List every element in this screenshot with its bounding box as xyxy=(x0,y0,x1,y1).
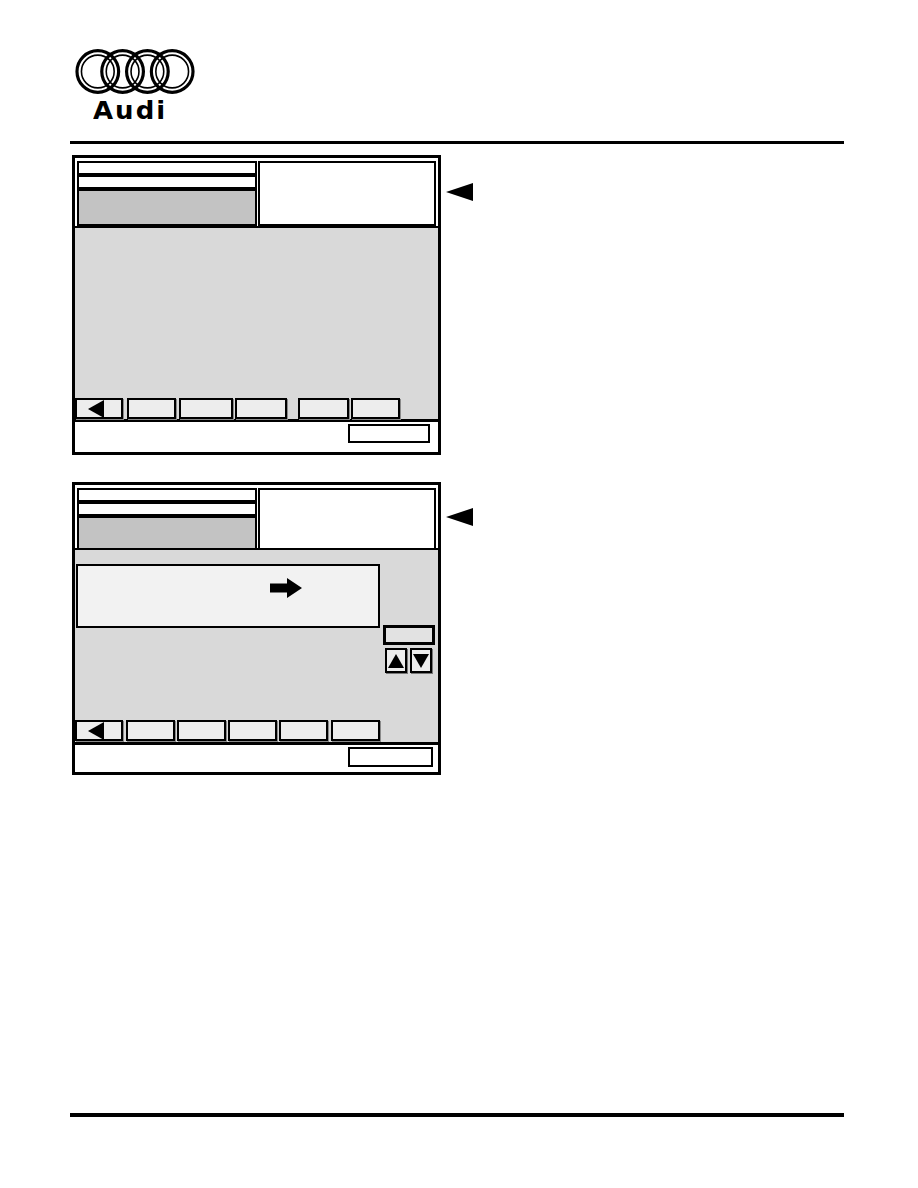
manual-page: Audi xyxy=(0,0,918,1188)
mini-button[interactable] xyxy=(383,625,435,645)
header-info-panel xyxy=(258,488,436,553)
up-arrow-icon xyxy=(388,654,404,668)
function-key-2[interactable] xyxy=(127,398,176,419)
function-key-3[interactable] xyxy=(177,720,226,741)
function-key-6[interactable] xyxy=(351,398,400,419)
scroll-up-button[interactable] xyxy=(385,648,407,673)
function-key-4[interactable] xyxy=(235,398,287,419)
callout-arrow-1 xyxy=(446,183,473,201)
function-key-4[interactable] xyxy=(228,720,277,741)
footer-box xyxy=(348,747,433,767)
header-field-1 xyxy=(77,161,257,175)
scan-tool-screen-1 xyxy=(72,155,441,455)
callout-arrow-2 xyxy=(446,508,473,526)
down-arrow-icon xyxy=(413,654,429,668)
function-key-3[interactable] xyxy=(179,398,233,419)
back-function-key[interactable] xyxy=(75,398,123,419)
audi-logo: Audi xyxy=(75,46,205,128)
header-info-panel xyxy=(258,161,436,226)
audi-wordmark: Audi xyxy=(93,97,188,125)
scroll-down-button[interactable] xyxy=(410,648,432,673)
function-key-5[interactable] xyxy=(298,398,349,419)
function-key-2[interactable] xyxy=(126,720,175,741)
bottom-divider xyxy=(70,1113,844,1117)
right-arrow-icon xyxy=(270,578,302,598)
left-arrow-icon xyxy=(88,400,104,418)
message-panel xyxy=(76,564,380,628)
display-area xyxy=(75,226,438,422)
header-field-1 xyxy=(77,488,257,502)
left-arrow-icon xyxy=(88,722,104,740)
audi-rings-icon xyxy=(75,48,195,95)
back-function-key[interactable] xyxy=(75,720,123,741)
function-key-6[interactable] xyxy=(331,720,380,741)
display-area xyxy=(75,548,438,745)
scan-tool-screen-2 xyxy=(72,482,441,775)
header-field-selected xyxy=(77,189,257,226)
footer-box xyxy=(348,424,430,443)
top-divider xyxy=(70,141,844,144)
header-field-2 xyxy=(77,175,257,189)
header-field-2 xyxy=(77,502,257,516)
function-key-5[interactable] xyxy=(279,720,328,741)
